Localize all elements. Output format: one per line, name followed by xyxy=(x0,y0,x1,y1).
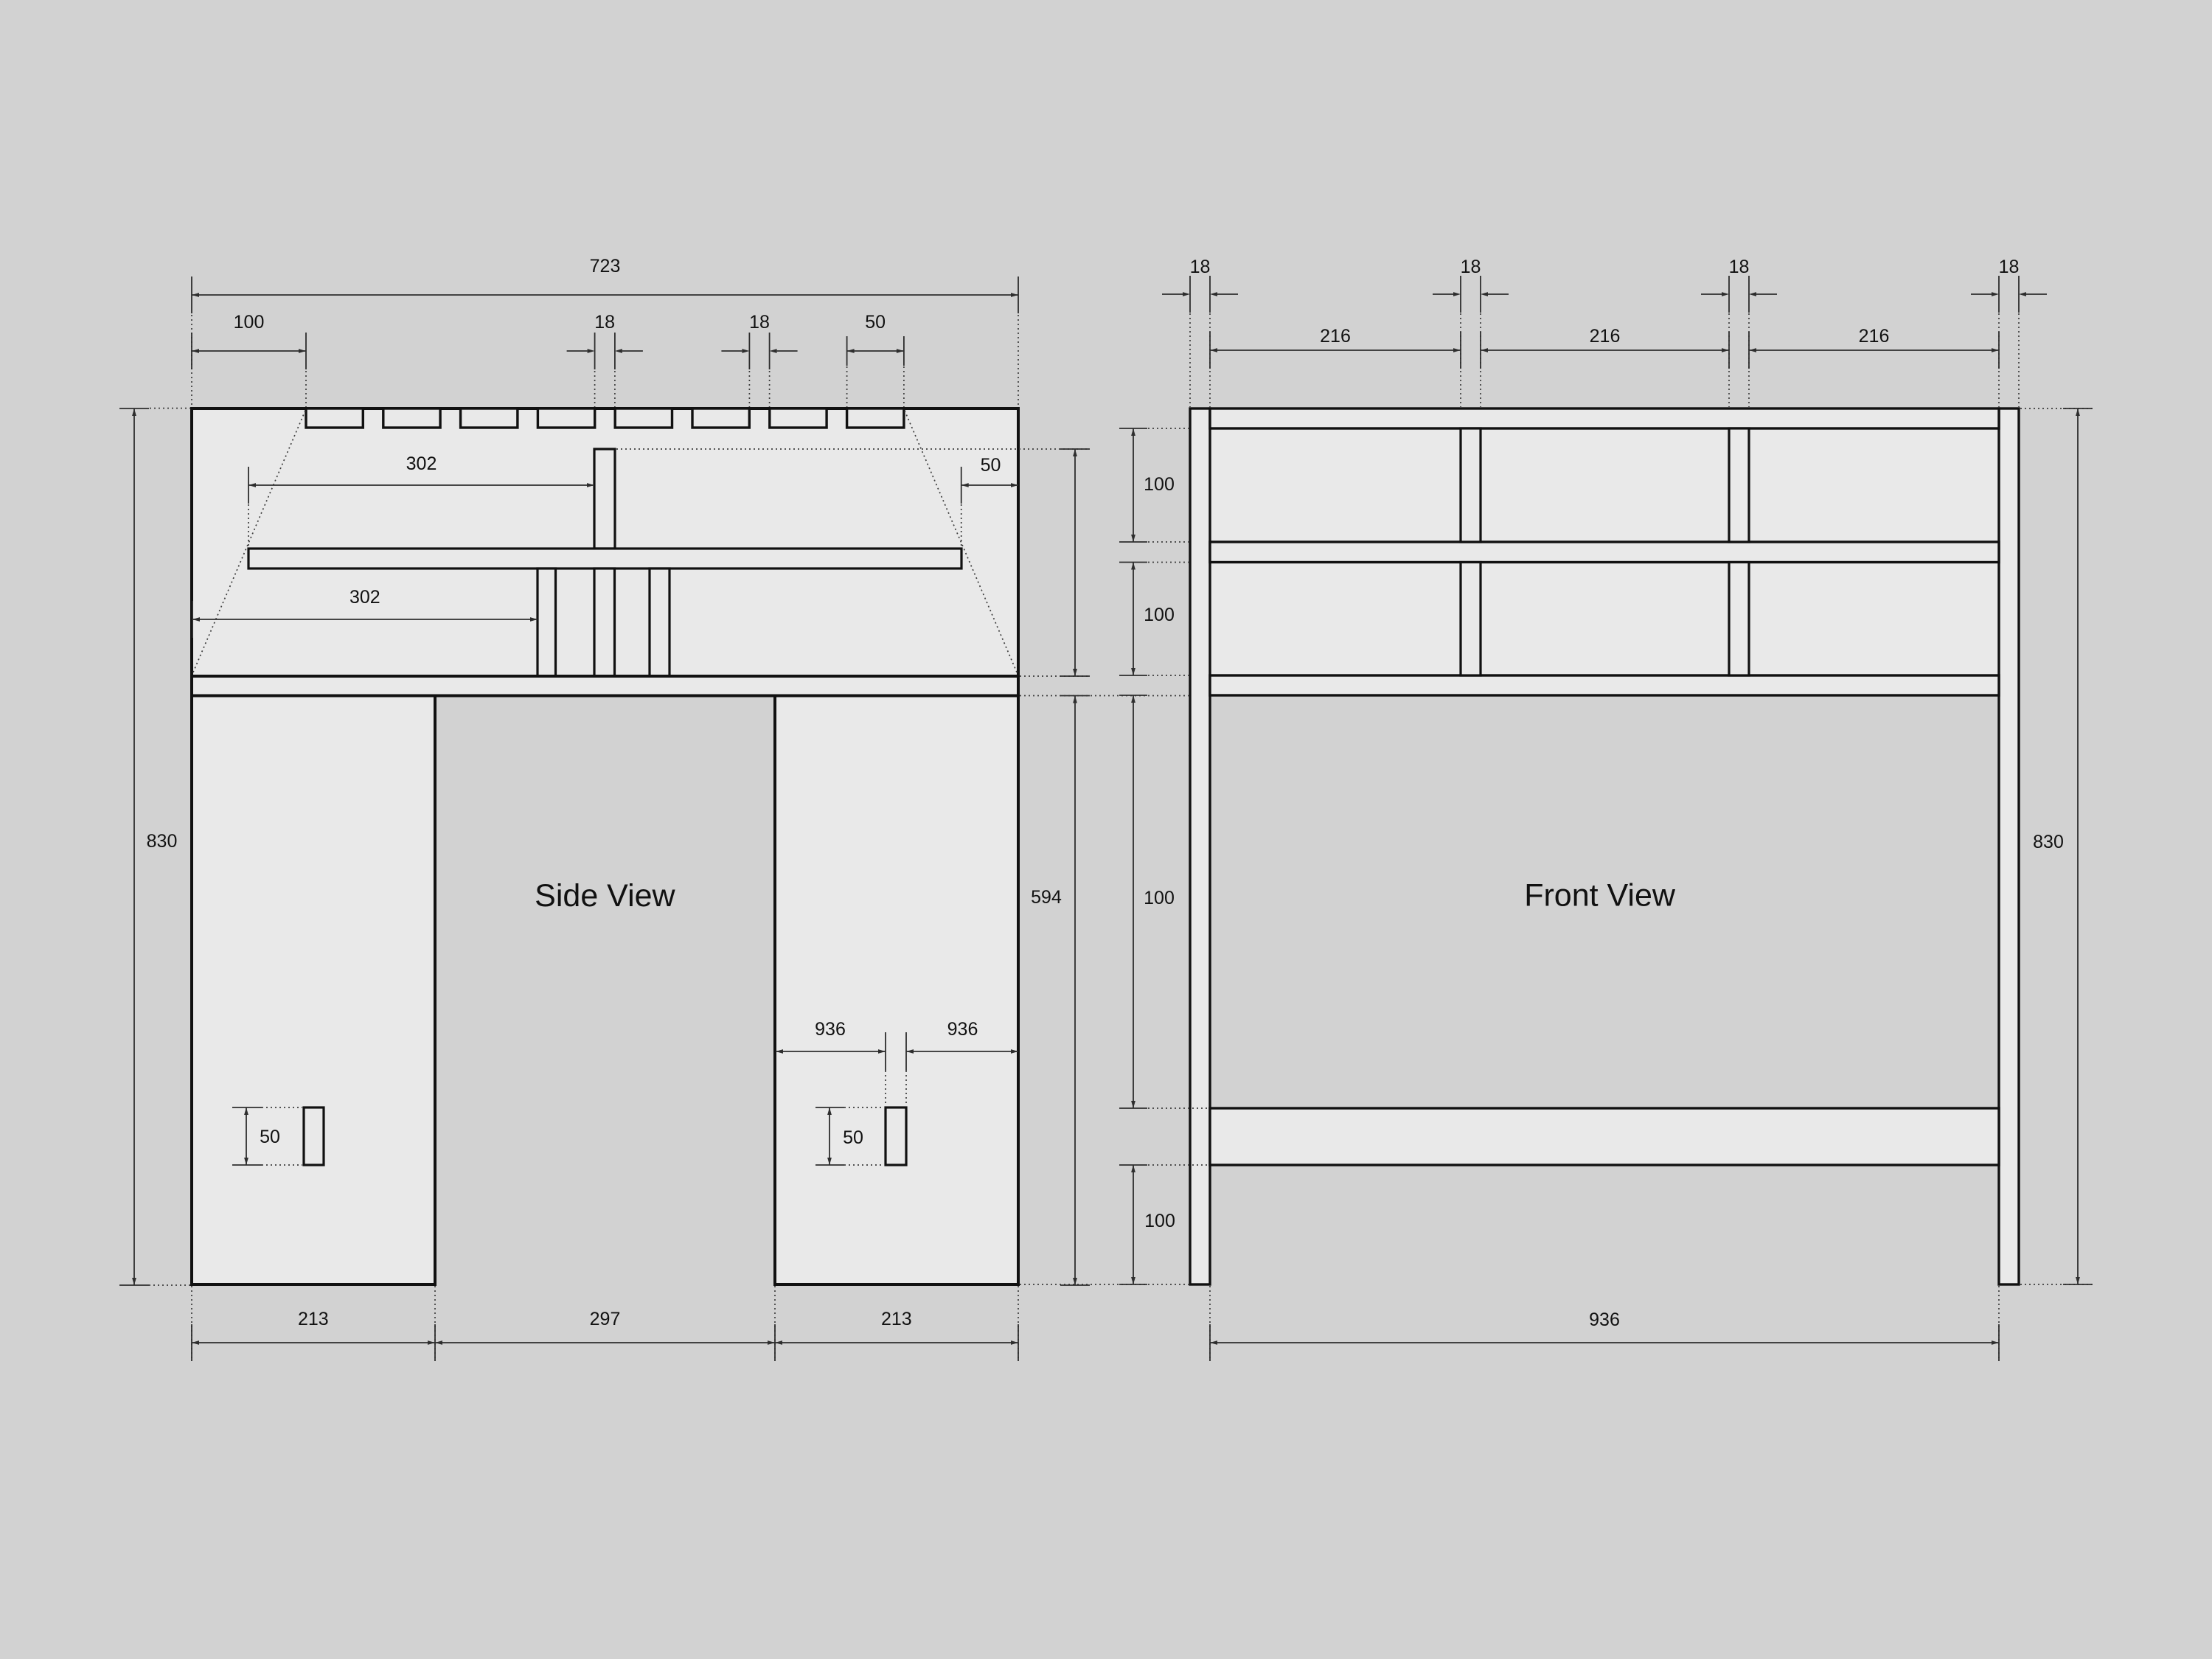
svg-text:216: 216 xyxy=(1320,326,1351,347)
svg-text:936: 936 xyxy=(1589,1310,1620,1330)
svg-text:Side View: Side View xyxy=(535,878,675,914)
svg-text:100: 100 xyxy=(1144,474,1175,495)
svg-text:830: 830 xyxy=(2033,832,2064,852)
svg-text:100: 100 xyxy=(1144,605,1175,625)
svg-text:50: 50 xyxy=(843,1127,863,1148)
svg-text:213: 213 xyxy=(298,1309,329,1329)
svg-text:100: 100 xyxy=(234,312,265,333)
svg-text:100: 100 xyxy=(1144,888,1175,908)
svg-text:Front View: Front View xyxy=(1524,877,1676,913)
svg-text:936: 936 xyxy=(947,1019,978,1040)
svg-text:50: 50 xyxy=(260,1127,280,1147)
svg-text:302: 302 xyxy=(406,453,437,474)
svg-text:213: 213 xyxy=(881,1309,912,1329)
svg-text:302: 302 xyxy=(349,587,380,608)
svg-text:18: 18 xyxy=(1999,257,2020,277)
svg-text:297: 297 xyxy=(590,1309,621,1329)
svg-text:830: 830 xyxy=(147,831,178,852)
svg-text:216: 216 xyxy=(1590,326,1621,347)
svg-text:723: 723 xyxy=(590,256,621,276)
svg-text:594: 594 xyxy=(1031,887,1062,908)
svg-text:50: 50 xyxy=(981,455,1001,476)
svg-text:100: 100 xyxy=(1144,1211,1175,1231)
svg-text:18: 18 xyxy=(594,312,615,333)
svg-text:18: 18 xyxy=(1190,257,1211,277)
svg-text:18: 18 xyxy=(1461,257,1481,277)
svg-text:936: 936 xyxy=(815,1019,846,1040)
svg-text:50: 50 xyxy=(865,312,886,333)
svg-text:18: 18 xyxy=(749,312,770,333)
svg-text:18: 18 xyxy=(1729,257,1750,277)
svg-text:216: 216 xyxy=(1859,326,1890,347)
